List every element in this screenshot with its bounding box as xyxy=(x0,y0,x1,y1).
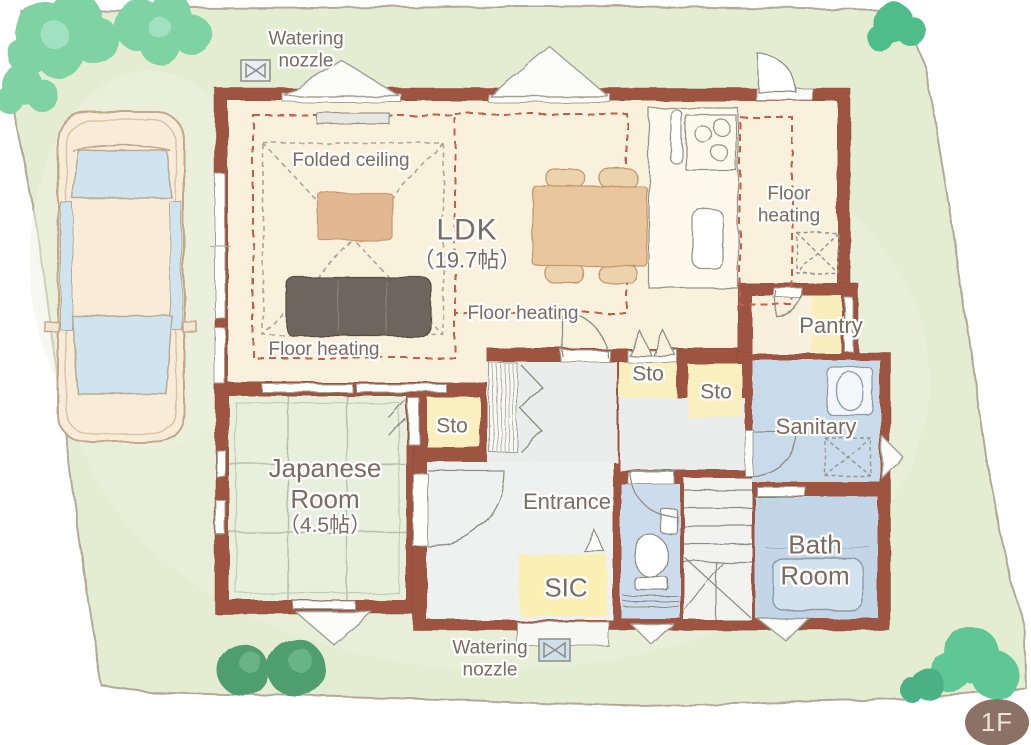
label-floor-heating-right: Floor heating xyxy=(758,184,820,229)
room-size: （19.7帖） xyxy=(413,248,522,274)
kitchen-sink xyxy=(692,209,723,268)
label-ldk: LDK （19.7帖） xyxy=(413,212,522,273)
label-watering-nozzle-bottom: Watering nozzle xyxy=(452,638,527,683)
label-sto-top: Sto xyxy=(632,363,664,388)
room-name: LDK xyxy=(413,212,522,247)
car-rear-window xyxy=(72,316,172,394)
dining-chair xyxy=(546,265,584,283)
label-sto-right: Sto xyxy=(700,381,732,406)
washing-machine xyxy=(827,367,873,415)
room-name: Japanese xyxy=(269,453,382,484)
room-name: Room xyxy=(780,560,849,591)
dining-chair xyxy=(599,265,637,283)
dining-set xyxy=(533,169,647,283)
label-entrance: Entrance xyxy=(523,489,611,515)
floor-plan-page: Watering nozzle Folded ceiling LDK （19.7… xyxy=(0,0,1031,745)
label-line: heating xyxy=(758,206,820,228)
label-line: Floor xyxy=(758,184,820,206)
car xyxy=(45,112,197,442)
label-line: Watering xyxy=(268,29,343,51)
car-window-right xyxy=(170,202,182,330)
dining-table xyxy=(533,186,647,266)
low-table xyxy=(318,193,392,240)
watering-nozzle-icon xyxy=(539,639,570,661)
car-windshield xyxy=(72,150,172,198)
label-folded-ceiling: Folded ceiling xyxy=(292,150,409,172)
label-floor-heating-mid: Floor heating xyxy=(468,303,579,325)
room-name: Bath xyxy=(780,529,849,560)
label-line: Watering xyxy=(452,638,527,660)
floor-plan-canvas xyxy=(0,0,1031,745)
car-window-left xyxy=(60,202,72,330)
tv-board xyxy=(317,113,389,124)
label-sic: SIC xyxy=(544,573,587,604)
kitchen-counter xyxy=(649,108,738,288)
room-name: Room xyxy=(269,484,382,515)
room-size: （4.5帖） xyxy=(269,514,382,539)
toilet-sink xyxy=(661,509,677,533)
label-line: nozzle xyxy=(452,660,527,682)
sofa xyxy=(286,277,431,336)
label-watering-nozzle-top: Watering nozzle xyxy=(268,29,343,74)
dining-chair xyxy=(546,169,584,187)
label-japanese-room: Japanese Room （4.5帖） xyxy=(269,453,382,539)
label-pantry: Pantry xyxy=(799,313,863,339)
watering-nozzle-icon xyxy=(241,60,270,81)
label-floor-heating-left: Floor heating xyxy=(269,339,380,361)
label-bath-room: Bath Room xyxy=(780,529,849,590)
label-line: nozzle xyxy=(268,51,343,73)
label-sanitary: Sanitary xyxy=(776,414,857,440)
dining-chair xyxy=(599,169,637,187)
car-mirror-left xyxy=(45,322,59,332)
label-sto-left: Sto xyxy=(436,415,468,440)
floor-badge: 1F xyxy=(965,699,1029,745)
car-mirror-right xyxy=(183,322,197,332)
